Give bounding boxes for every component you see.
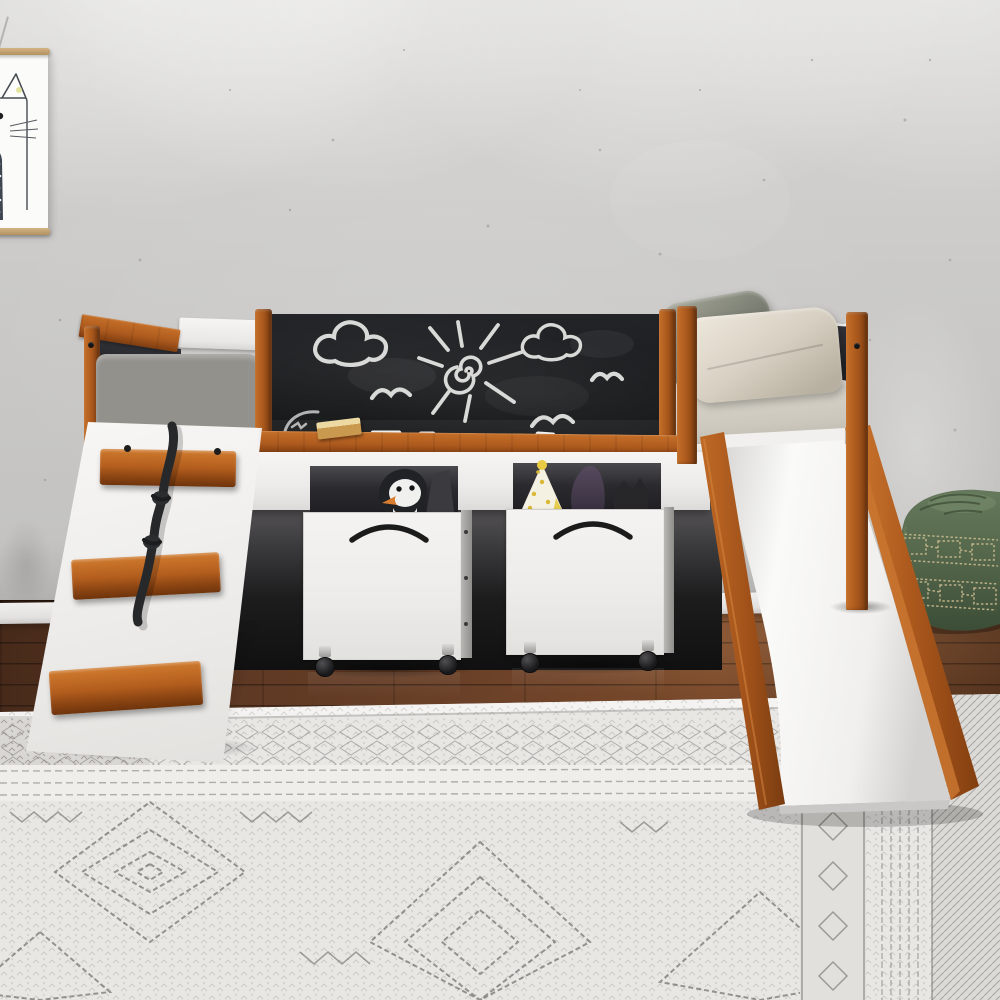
bin2-caster	[520, 642, 540, 672]
ramp-screw-cap	[214, 448, 221, 455]
chalkboard	[272, 314, 659, 438]
chalk-drawings	[272, 314, 659, 438]
bin2-side	[664, 507, 674, 653]
bin1-side	[461, 510, 472, 658]
climbing-rope	[125, 418, 195, 633]
bin1-handle	[348, 520, 430, 546]
chalk-bird	[592, 374, 622, 380]
bin1-caster	[315, 646, 335, 676]
poster-top-dowel	[0, 48, 50, 55]
poster-bottom-dowel	[0, 228, 50, 235]
bin2-handle	[552, 517, 634, 543]
bin1-caster	[438, 644, 458, 674]
cat-poster	[0, 52, 48, 232]
guard-rail-left	[179, 318, 266, 351]
footboard-bolt-hole	[854, 343, 860, 349]
footboard-post-left	[677, 306, 697, 464]
chalk-sun-spiral	[446, 357, 481, 393]
kids-room-scene	[0, 0, 1000, 1000]
cat-illustration	[0, 52, 48, 232]
chalk-cloud-left	[315, 322, 386, 365]
cream-pillow	[685, 306, 844, 405]
pillow-seam	[707, 344, 823, 370]
bin2-caster	[638, 640, 658, 670]
footboard-post-right	[846, 312, 868, 610]
slide	[680, 413, 1000, 843]
headboard-bolt-hole	[88, 342, 94, 348]
